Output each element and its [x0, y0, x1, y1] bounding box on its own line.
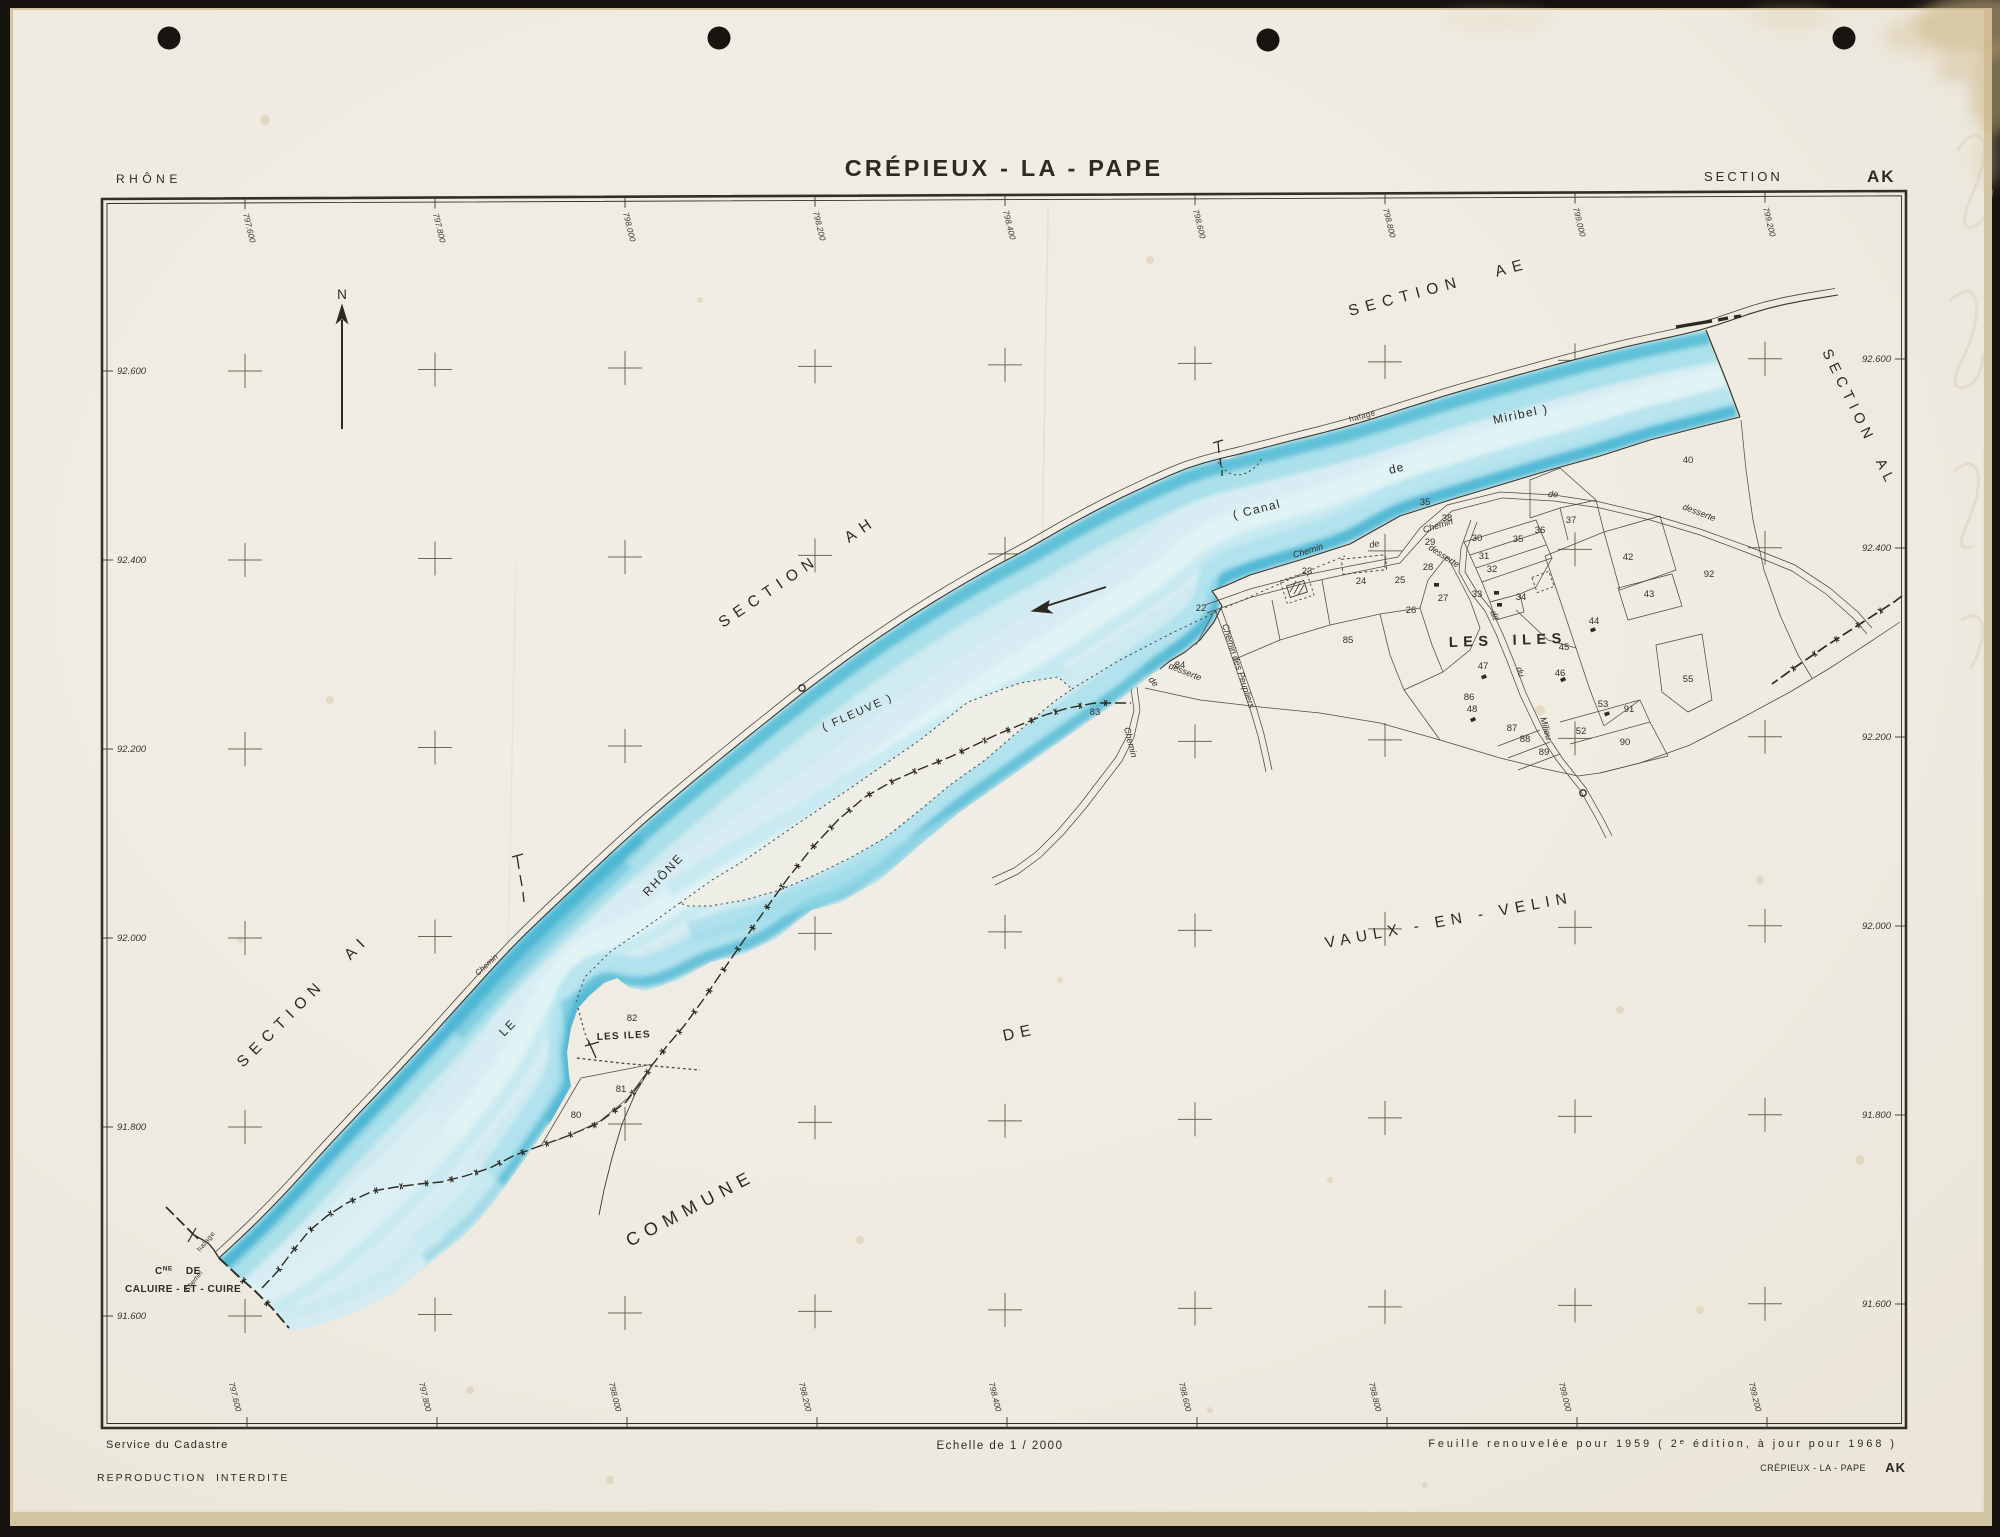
svg-text:26: 26	[1406, 605, 1417, 616]
svg-text:42: 42	[1623, 552, 1634, 563]
svg-text:35: 35	[1420, 497, 1431, 508]
svg-text:92.000: 92.000	[1862, 921, 1892, 932]
svg-text:Service du Cadastre: Service du Cadastre	[106, 1439, 228, 1451]
svg-text:SECTION: SECTION	[1704, 169, 1783, 184]
svg-text:81: 81	[616, 1084, 627, 1095]
svg-text:90: 90	[1620, 737, 1631, 748]
svg-text:23: 23	[1302, 566, 1313, 577]
svg-text:83: 83	[1090, 707, 1101, 718]
svg-text:87: 87	[1507, 723, 1518, 734]
svg-text:91: 91	[1624, 704, 1635, 715]
svg-text:RHÔNE: RHÔNE	[116, 171, 182, 186]
svg-text:27: 27	[1438, 593, 1449, 604]
svg-text:48: 48	[1467, 704, 1478, 715]
svg-text:AK: AK	[1867, 167, 1896, 186]
svg-text:92.000: 92.000	[117, 933, 147, 944]
svg-text:92.400: 92.400	[1862, 543, 1892, 554]
svg-text:53: 53	[1598, 699, 1609, 710]
svg-text:22: 22	[1196, 603, 1207, 614]
svg-text:AK: AK	[1885, 1460, 1906, 1475]
svg-text:85: 85	[1343, 635, 1354, 646]
svg-text:91.800: 91.800	[117, 1122, 147, 1133]
svg-text:92.400: 92.400	[117, 555, 147, 566]
svg-text:25: 25	[1395, 575, 1406, 586]
svg-text:CALUIRE - ET - CUIRE: CALUIRE - ET - CUIRE	[125, 1284, 241, 1295]
svg-text:80: 80	[571, 1110, 582, 1121]
svg-text:30: 30	[1472, 533, 1483, 544]
svg-text:91.600: 91.600	[117, 1311, 147, 1322]
svg-text:91.600: 91.600	[1862, 1299, 1892, 1310]
svg-text:52: 52	[1576, 726, 1587, 737]
svg-text:de: de	[1368, 538, 1380, 550]
svg-text:CRÉPIEUX - LA - PAPE: CRÉPIEUX - LA - PAPE	[845, 154, 1164, 181]
svg-text:40: 40	[1683, 455, 1694, 466]
svg-text:86: 86	[1464, 692, 1475, 703]
svg-text:33: 33	[1472, 589, 1483, 600]
svg-text:CRÉPIEUX - LA - PAPE: CRÉPIEUX - LA - PAPE	[1760, 1463, 1866, 1473]
svg-text:de: de	[1548, 489, 1558, 499]
svg-text:31: 31	[1479, 551, 1490, 562]
svg-text:88: 88	[1520, 734, 1531, 745]
svg-text:32: 32	[1487, 564, 1498, 575]
svg-text:92.200: 92.200	[1862, 732, 1892, 743]
svg-text:46: 46	[1555, 668, 1566, 679]
svg-text:Echelle de 1 / 2000: Echelle de 1 / 2000	[937, 1440, 1064, 1452]
svg-text:35: 35	[1513, 534, 1524, 545]
svg-text:N: N	[337, 287, 347, 302]
svg-text:44: 44	[1589, 616, 1600, 627]
svg-text:92.200: 92.200	[117, 744, 147, 755]
svg-text:92.600: 92.600	[1862, 354, 1892, 365]
svg-text:92: 92	[1704, 569, 1715, 580]
svg-text:43: 43	[1644, 589, 1655, 600]
svg-text:91.800: 91.800	[1862, 1110, 1892, 1121]
svg-text:92.600: 92.600	[117, 366, 147, 377]
svg-text:55: 55	[1683, 674, 1694, 685]
svg-text:REPRODUCTION INTERDITE: REPRODUCTION INTERDITE	[97, 1472, 289, 1484]
svg-text:47: 47	[1478, 661, 1489, 672]
svg-text:28: 28	[1423, 562, 1434, 573]
svg-text:37: 37	[1566, 515, 1577, 526]
svg-text:34: 34	[1516, 592, 1527, 603]
svg-text:89: 89	[1539, 747, 1550, 758]
svg-text:82: 82	[627, 1013, 638, 1024]
svg-text:24: 24	[1356, 576, 1367, 587]
svg-text:36: 36	[1535, 525, 1546, 536]
svg-text:Feuille renouvelée pour 1959 (: Feuille renouvelée pour 1959 ( 2e éditio…	[1428, 1437, 1897, 1450]
